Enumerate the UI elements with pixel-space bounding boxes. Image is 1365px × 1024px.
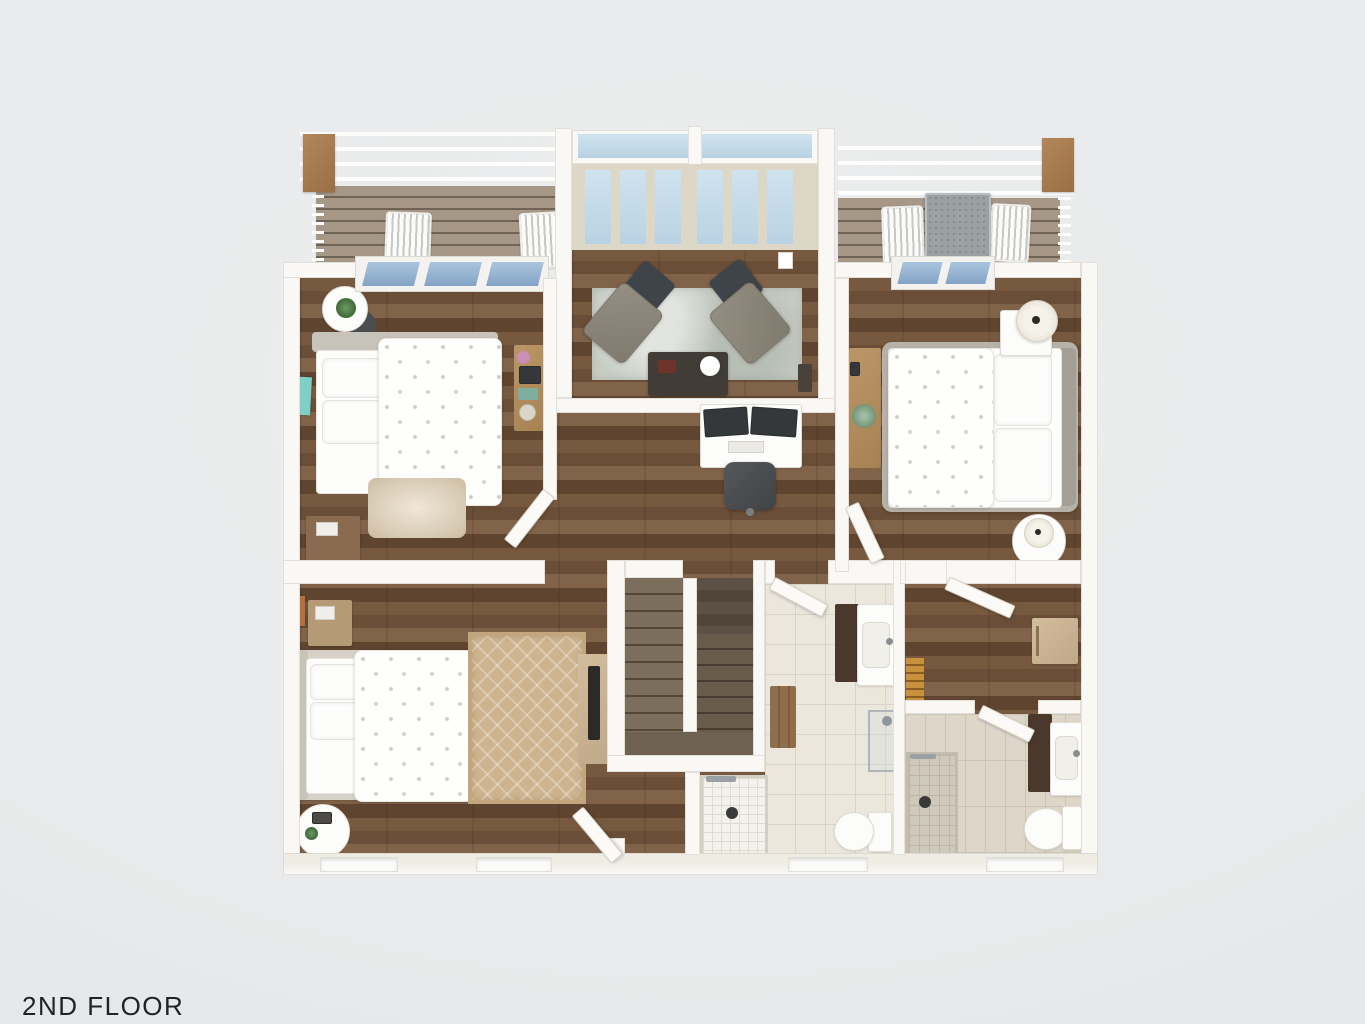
monitor <box>750 406 798 437</box>
office-chair <box>724 462 776 510</box>
window <box>986 857 1064 872</box>
faucet <box>1073 750 1080 757</box>
wall <box>685 772 700 855</box>
duvet <box>888 348 994 508</box>
wall <box>688 126 702 166</box>
tv <box>588 666 600 740</box>
wall <box>1015 560 1081 584</box>
tall-window <box>655 170 681 244</box>
bookshelf <box>798 364 812 392</box>
wood-bench <box>770 686 796 748</box>
glass-pane <box>485 261 545 287</box>
glass-pane <box>944 261 992 285</box>
tall-window <box>585 170 611 244</box>
shower-fixture <box>910 754 936 759</box>
floor-plan-render: 2ND FLOOR <box>0 0 1365 1024</box>
exterior-wall-bottom <box>283 853 1098 875</box>
potted-plant <box>852 404 876 428</box>
window <box>476 857 552 872</box>
toilet-bowl <box>834 812 874 851</box>
pillow <box>310 702 360 740</box>
chair-base <box>746 508 754 516</box>
tall-window <box>767 170 793 244</box>
wall <box>1038 700 1081 714</box>
shower-drain <box>726 807 738 819</box>
decor-books <box>312 812 332 824</box>
keyboard <box>728 441 764 453</box>
floor-label: 2ND FLOOR <box>22 993 184 1019</box>
book <box>518 388 538 400</box>
flowers <box>517 351 530 364</box>
stair-divider-wall <box>683 578 697 732</box>
outdoor-chair <box>989 203 1032 263</box>
wall <box>905 700 975 714</box>
vanity-cabinet <box>1028 714 1052 792</box>
flower-vase <box>700 356 720 376</box>
decor-books <box>316 522 338 536</box>
tall-window <box>732 170 758 244</box>
wall <box>607 755 765 772</box>
decor-books <box>315 606 335 620</box>
attic-ladder <box>906 658 924 704</box>
shag-rug <box>368 478 466 538</box>
glass-pane <box>896 261 944 285</box>
wall <box>818 128 835 412</box>
walk-in-shower <box>906 752 958 860</box>
wall <box>555 128 572 398</box>
shower-drain <box>919 796 931 808</box>
thermostat <box>778 252 793 269</box>
glass-sliding-door <box>355 256 549 292</box>
lamp-finial <box>1035 529 1041 535</box>
wall <box>607 560 625 772</box>
exterior-wall-top <box>993 262 1081 278</box>
potted-plant <box>305 827 318 840</box>
faucet <box>886 638 893 645</box>
sink-basin <box>1055 736 1078 780</box>
lamp-finial <box>1032 316 1040 324</box>
patterned-rug <box>468 632 586 804</box>
tall-window <box>620 170 646 244</box>
tall-window <box>697 170 723 244</box>
pillow <box>994 354 1052 426</box>
glass-sliding-door <box>891 256 995 290</box>
wood-post <box>1042 138 1074 192</box>
wall <box>543 278 557 500</box>
wall <box>283 560 545 584</box>
laptop <box>519 366 541 384</box>
vanity-cabinet <box>835 604 859 682</box>
stairs-lower-flight <box>697 634 753 732</box>
wall <box>905 560 947 584</box>
window <box>788 857 868 872</box>
shower-fixture <box>706 776 736 782</box>
shower-head <box>882 716 892 726</box>
cabinet-handles <box>1036 626 1039 656</box>
sink-basin <box>862 622 890 668</box>
bowl <box>519 404 536 421</box>
transom-window <box>578 134 688 158</box>
transom-window <box>700 134 812 158</box>
pillow <box>994 428 1052 502</box>
glass-pane <box>361 261 421 287</box>
exterior-wall-top <box>835 262 893 278</box>
pillow <box>310 664 360 700</box>
wood-post <box>303 134 335 192</box>
stairs-upper-flight <box>625 578 683 732</box>
books <box>658 360 676 373</box>
wall <box>753 560 765 772</box>
toilet-tank <box>1062 806 1082 850</box>
wall <box>835 278 849 572</box>
exterior-wall-top <box>283 262 357 278</box>
railing <box>300 132 582 190</box>
monitor <box>703 406 749 437</box>
duvet <box>354 650 474 802</box>
potted-plant <box>336 298 356 318</box>
stair-landing <box>625 732 753 757</box>
window <box>320 857 398 872</box>
wall <box>893 560 905 855</box>
exterior-wall-right <box>1081 262 1098 875</box>
decor-item <box>850 362 860 376</box>
stair-top-landing <box>697 578 753 636</box>
wall <box>625 560 683 578</box>
glass-pane <box>423 261 483 287</box>
